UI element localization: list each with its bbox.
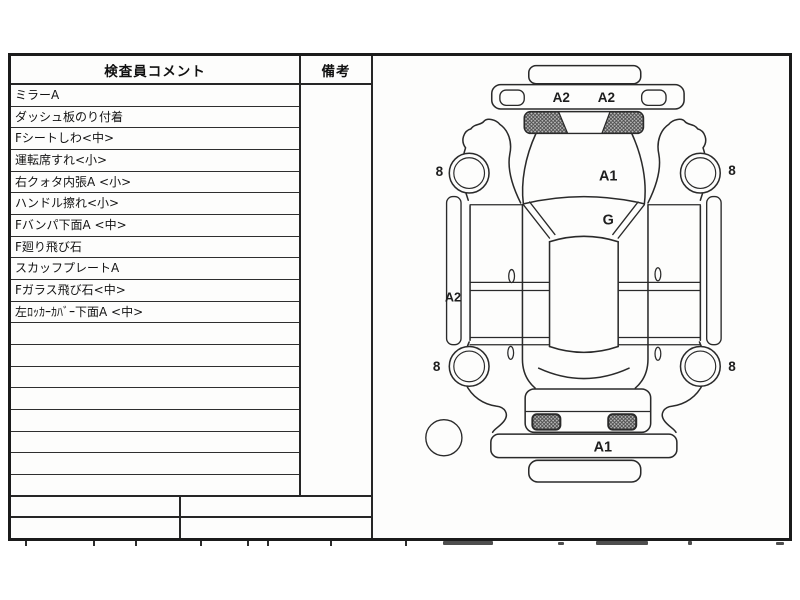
comment-row: F廻り飛び石 (11, 237, 299, 259)
windshield-top-arc (523, 197, 644, 204)
comment-row (11, 410, 299, 432)
comment-row (11, 323, 299, 345)
door-handle (509, 270, 515, 283)
comment-rows: ミラーAダッシュ板のり付着Fシートしわ<中>運転席すれ<小>右クォタ内張A <小… (11, 85, 299, 497)
comment-row: ダッシュ板のり付着 (11, 107, 299, 129)
wheels (449, 153, 720, 386)
comment-row: ハンドル擦れ<小> (11, 193, 299, 215)
roof-front-arc (550, 236, 619, 241)
comment-row: ミラーA (11, 85, 299, 107)
comments-remarks-divider (299, 56, 301, 497)
damage-label-rear-a1: A1 (594, 439, 612, 455)
comment-row: Fガラス飛び石<中> (11, 280, 299, 302)
damage-label-molding-a2: A2 (445, 290, 461, 304)
damage-label-hood-a1: A1 (599, 168, 617, 184)
damage-label-windshield-g: G (603, 213, 614, 229)
comment-row: 運転席すれ<小> (11, 150, 299, 172)
roof-rear-arc (550, 347, 619, 353)
comment-row: スカッフプレートA (11, 258, 299, 280)
wheel-label-front-left: 8 (436, 164, 444, 179)
comment-row (11, 388, 299, 410)
wheel-label-rear-left: 8 (433, 359, 441, 374)
rear-lower-panel (529, 460, 641, 482)
wheel-label-rear-right: 8 (728, 359, 736, 374)
comment-row (11, 453, 299, 475)
spare-tire (426, 420, 462, 456)
comments-column-header: 検査員コメント (11, 56, 299, 83)
door-split-right (619, 282, 700, 290)
cutoff-tick (330, 541, 332, 546)
headlight-right (642, 90, 666, 105)
side-glass-left-edge (522, 205, 535, 388)
remarks-column-header: 備考 (301, 56, 371, 83)
comment-row: 右クォタ内張A <小> (11, 172, 299, 194)
taillight-left-hatched (532, 414, 560, 429)
scanned-inspection-sheet: { "table": { "header": { "comments": "検査… (0, 0, 800, 600)
rear-window-arc (539, 368, 629, 378)
cutoff-tick (247, 541, 249, 546)
damage-label-front-a2-right: A2 (598, 90, 615, 105)
taillight-right-hatched (608, 414, 636, 429)
hood-edge-right (632, 133, 645, 203)
front-grille (529, 66, 641, 84)
body-side-edges (470, 206, 700, 341)
cutoff-tick (267, 541, 269, 546)
comment-row: Fバンパ下面A <中> (11, 215, 299, 237)
side-glass-right-edge (635, 205, 648, 388)
quarter-split-left (470, 337, 549, 344)
door-handle (655, 347, 661, 360)
comment-row: 左ﾛｯｶｰｶﾊﾞｰ下面A <中> (11, 302, 299, 324)
rear-bumper (491, 434, 677, 457)
hood-edge-left (523, 133, 536, 203)
door-handle (508, 346, 514, 359)
comment-row (11, 475, 299, 497)
door-split-left (470, 282, 549, 290)
rocker-molding-left (447, 197, 461, 345)
cutoff-tick (93, 541, 95, 546)
cowl-center-gap (559, 112, 610, 134)
comment-row (11, 367, 299, 389)
footer-section-mid-line (11, 516, 371, 518)
footer-section-divider (179, 497, 181, 538)
rocker-molding-right (707, 197, 721, 345)
headlight-left (500, 90, 524, 105)
quarter-split-right (619, 337, 700, 344)
comment-row: Fシートしわ<中> (11, 128, 299, 150)
comment-row (11, 432, 299, 454)
a-pillar-left (523, 202, 555, 238)
car-damage-diagram: A2 A2 A1 G A2 A1 8 8 8 8 (373, 53, 792, 547)
damage-label-front-a2-left: A2 (553, 90, 570, 105)
a-pillar-right (613, 202, 645, 238)
cutoff-tick (135, 541, 137, 546)
comment-row (11, 345, 299, 367)
roof-sides (550, 242, 619, 347)
cutoff-tick (25, 541, 27, 546)
cutoff-tick (200, 541, 202, 546)
wheel-label-front-right: 8 (728, 163, 736, 178)
door-handle (655, 268, 661, 281)
